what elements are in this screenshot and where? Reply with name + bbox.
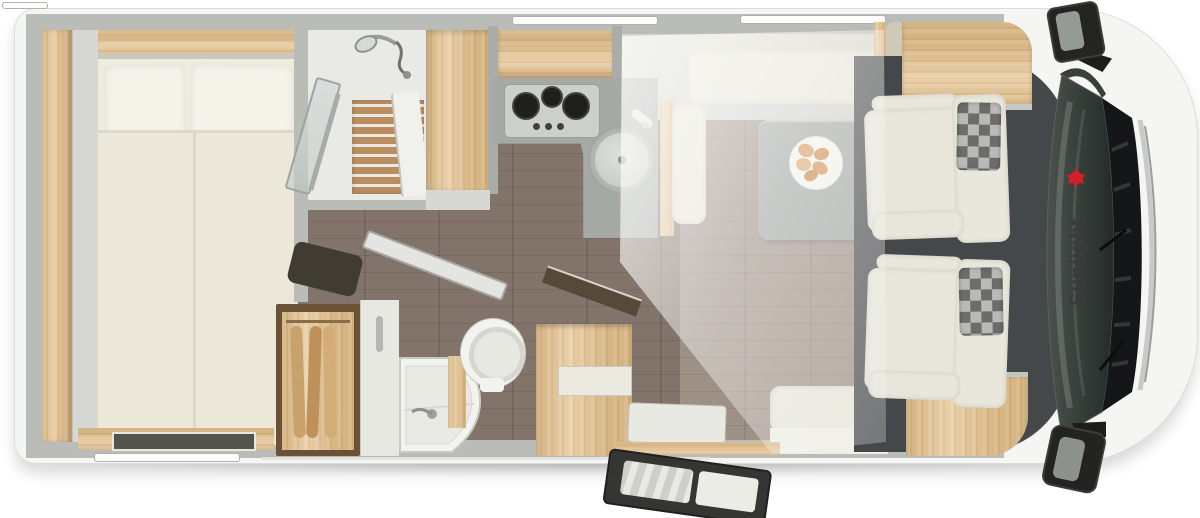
wall-rear-left xyxy=(26,14,42,458)
entry-step xyxy=(627,402,726,445)
pillow-right xyxy=(189,63,294,139)
kitchen-wall xyxy=(612,26,622,82)
bed-side-board xyxy=(72,30,100,442)
brand-logo: Sunlight xyxy=(1018,235,1138,261)
duvet-crease xyxy=(193,130,196,442)
hob-knob-2 xyxy=(545,123,552,130)
rear-window xyxy=(112,432,256,451)
entry-door-panel xyxy=(695,471,759,513)
floorplan-canvas: Sunlight xyxy=(0,0,1200,518)
pillow-left xyxy=(103,63,186,138)
passenger-cushion-roll xyxy=(871,209,964,240)
bedroom-side-shelf xyxy=(42,30,72,442)
hob-burner-left xyxy=(512,92,540,120)
hob-knob-3 xyxy=(557,123,564,130)
cabinet-handle xyxy=(376,316,383,352)
roof-vent-slot-corner xyxy=(2,2,48,9)
toilet-seat xyxy=(469,327,525,383)
roof-window-slot-left xyxy=(512,16,658,25)
brand-logo-text: Sunlight xyxy=(1066,187,1090,307)
headboard-shelf xyxy=(98,30,296,56)
passenger-headrest-checker xyxy=(956,102,1001,171)
closet-rail xyxy=(286,320,350,323)
driver-headrest-checker xyxy=(959,267,1004,336)
hob-knob-1 xyxy=(533,123,540,130)
shower-bottom-wall xyxy=(308,200,426,210)
skirt-slot-bottom xyxy=(94,453,240,462)
entry-side-unit-drawer xyxy=(558,366,632,396)
roof-window-slot-right xyxy=(740,15,886,24)
kitchen-shelf xyxy=(498,30,614,78)
wardrobe-base xyxy=(426,190,490,210)
hob-burner-right xyxy=(562,92,590,120)
hanging-clothes-3 xyxy=(323,326,337,438)
hob-burner-top xyxy=(541,86,563,108)
shower-head-icon xyxy=(352,26,416,82)
duvet xyxy=(98,130,298,445)
toilet-lid-notch xyxy=(480,378,504,392)
wardrobe-cabinet xyxy=(426,30,488,190)
entry-door-steps xyxy=(620,460,694,503)
